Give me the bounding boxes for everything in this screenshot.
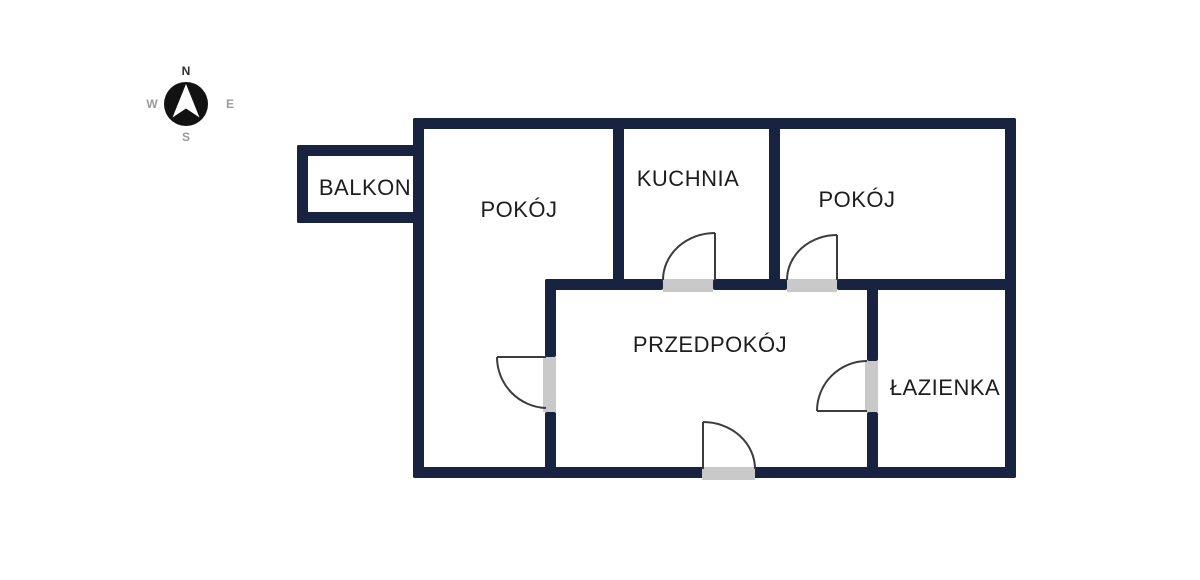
compass-south-label: S bbox=[182, 130, 190, 144]
door-swing-entry bbox=[703, 422, 755, 469]
door-swing-kitchen bbox=[663, 233, 715, 280]
wall-mid-segment-b bbox=[713, 279, 787, 290]
door-opening-bathroom bbox=[865, 361, 878, 412]
wall-balcony-bottom bbox=[297, 212, 420, 223]
door-swing-room-right bbox=[787, 235, 837, 280]
wall-mid-segment-c bbox=[837, 279, 1016, 290]
wall-mid-segment-a bbox=[545, 279, 663, 290]
wall-outer-top bbox=[413, 118, 1016, 129]
wall-hall-left-lower bbox=[545, 412, 556, 478]
room-label-balkon: BALKON bbox=[319, 175, 411, 201]
floor-plan-canvas: N E S W BALKON POKÓJ KUCHNIA POKÓJ PRZED… bbox=[0, 0, 1200, 580]
room-label-pokoj-left: POKÓJ bbox=[480, 197, 557, 223]
room-label-lazienka: ŁAZIENKA bbox=[890, 375, 1000, 401]
room-label-kuchnia: KUCHNIA bbox=[637, 166, 740, 192]
wall-kitchen-left bbox=[613, 118, 624, 290]
door-swing-hall-west bbox=[497, 357, 546, 408]
door-opening-room-right bbox=[787, 279, 837, 292]
wall-bath-left-upper bbox=[867, 279, 878, 361]
door-opening-entry bbox=[702, 467, 755, 480]
wall-hall-left-upper bbox=[545, 279, 556, 357]
compass-rose-icon bbox=[164, 82, 208, 126]
room-label-pokoj-right: POKÓJ bbox=[818, 187, 895, 213]
door-opening-hall-west bbox=[543, 357, 556, 412]
room-label-przedpokoj: PRZEDPOKÓJ bbox=[633, 332, 787, 358]
compass-north-label: N bbox=[182, 64, 191, 78]
wall-kitchen-right bbox=[769, 118, 780, 290]
wall-bath-left-lower bbox=[867, 412, 878, 478]
door-opening-kitchen bbox=[663, 279, 713, 292]
door-swing-bathroom bbox=[817, 361, 867, 411]
wall-outer-right bbox=[1005, 118, 1016, 478]
wall-outer-left bbox=[413, 118, 424, 478]
compass-east-label: E bbox=[226, 97, 234, 111]
wall-balcony-top bbox=[297, 145, 420, 156]
door-swing-overlay bbox=[0, 0, 1200, 580]
compass-west-label: W bbox=[146, 97, 157, 111]
